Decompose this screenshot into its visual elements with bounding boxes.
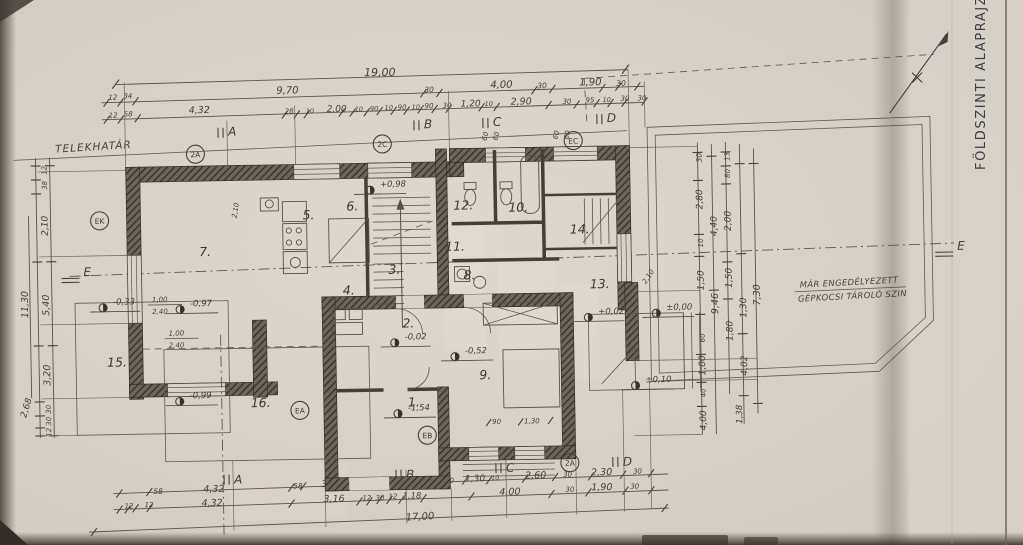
- level-value: -0,99: [190, 391, 212, 401]
- dim-label: 10: [485, 100, 493, 108]
- dim-label: 30: [45, 416, 53, 426]
- dim-label: 30: [694, 153, 703, 163]
- dim-label: 1,38: [735, 404, 745, 424]
- room-number-5: 5.: [302, 207, 314, 222]
- dim-label: 10: [385, 104, 393, 112]
- dim-label: 30: [637, 94, 647, 102]
- dim-label: 30: [630, 482, 640, 490]
- axis-label-right-e: E: [957, 239, 965, 253]
- paper-fold-shadow: [872, 0, 910, 545]
- dim-label: 2,00: [327, 105, 347, 115]
- dim-label: 1,00: [698, 355, 708, 375]
- room-number-10: 10.: [508, 199, 528, 214]
- dim-label: 58: [153, 487, 163, 496]
- dim-label: 1,50: [697, 270, 707, 290]
- dim-label: 2,80: [695, 189, 705, 209]
- dim-label: 30: [45, 404, 53, 414]
- dim-label: 38: [41, 180, 49, 190]
- dim-label: 19,00: [364, 66, 396, 80]
- dim-label: 13: [723, 152, 731, 161]
- cut-off-text-smudge-2: [744, 537, 778, 545]
- level-value: -0,02: [405, 332, 427, 342]
- drawing-title-vertical: FÖLDSZINTI ALAPRAJZ: [972, 0, 989, 170]
- dim-label: 4,00: [490, 80, 512, 91]
- room-number-14: 14.: [570, 221, 590, 236]
- dim-label: 3,20: [42, 365, 53, 386]
- dim-label: 90: [425, 102, 435, 110]
- dim-label: 30: [375, 494, 385, 502]
- room-number-2: 2.: [402, 315, 414, 330]
- room-number-13: 13.: [590, 276, 610, 291]
- dim-label: 4,00: [699, 410, 709, 430]
- room-number-16: 16.: [251, 395, 271, 410]
- level-value: -0,97: [190, 299, 213, 309]
- window-dim: 1,00: [152, 296, 168, 304]
- axis-label-top-d: D: [607, 111, 616, 125]
- room-number-3: 3.: [388, 262, 400, 277]
- dim-label: 12: [41, 165, 49, 175]
- room-number-11: 11.: [445, 239, 465, 254]
- dim-label: 11,30: [20, 291, 31, 318]
- axis-label-bottom-d: D: [623, 455, 632, 469]
- axis-label-bottom-a: A: [233, 472, 242, 486]
- axis-label-bottom-c: C: [506, 461, 515, 475]
- dim-label: 80: [724, 168, 732, 178]
- dim-label: 12: [362, 494, 372, 502]
- level-value: ±0,10: [645, 375, 671, 385]
- dim-label: 30: [616, 79, 626, 88]
- dim-label: 4,32: [189, 105, 210, 116]
- dim-label: 2,00: [723, 211, 733, 231]
- level-value: -0,52: [465, 346, 487, 356]
- dim-label: 7,30: [752, 284, 763, 305]
- section-marker-label: EA: [295, 406, 306, 415]
- room-number-12: 12.: [453, 197, 473, 212]
- dim-label: 2,10: [40, 215, 50, 235]
- level-value: +0,02: [598, 307, 624, 317]
- dim-label: 1,90: [591, 482, 612, 493]
- dim-label: 1,90: [579, 77, 601, 88]
- axis-label-top-c: C: [493, 115, 502, 129]
- window-dim: 1,30: [524, 417, 540, 425]
- dim-label: 1,30: [465, 474, 485, 484]
- window-dim: 1,00: [168, 329, 184, 337]
- dim-label: 1,30: [739, 297, 749, 317]
- dim-label: 30: [565, 486, 575, 494]
- dim-label: 17,00: [405, 511, 434, 523]
- level-value: +0,98: [380, 180, 407, 190]
- room-number-7: 7.: [199, 244, 211, 259]
- section-marker-label: 2C: [377, 140, 387, 149]
- section-marker-label: 2A: [565, 459, 576, 468]
- dim-label: 12: [124, 502, 134, 510]
- dim-label: 90: [398, 103, 408, 111]
- room-number-15: 15.: [107, 354, 127, 369]
- dim-label: 10: [491, 474, 499, 482]
- section-marker-label: EB: [422, 431, 432, 440]
- dim-label: 10: [355, 105, 363, 113]
- section-marker-label: EC: [568, 137, 578, 146]
- window-dim: 90: [492, 418, 502, 426]
- window-dim: 2,40: [169, 341, 185, 349]
- dim-label: 58: [293, 481, 303, 490]
- dim-label: 10: [412, 103, 420, 111]
- level-value: ±0,00: [666, 303, 692, 313]
- dim-label: 4,40: [710, 216, 720, 236]
- dim-label: 95: [585, 96, 595, 104]
- room-number-9: 9.: [479, 367, 491, 382]
- axis-label-top-a: A: [227, 124, 236, 138]
- dim-label: 9,46: [710, 293, 721, 314]
- dim-label: 30: [633, 467, 643, 475]
- dim-label: 12: [388, 493, 398, 501]
- cut-off-text-smudge: [642, 535, 728, 545]
- axis-label-left-e: E: [83, 265, 91, 279]
- dim-label: 12: [109, 112, 119, 120]
- scanned-floor-plan-page: FÖLDSZINTI ALAPRAJZ TELEKHATÁR: [0, 0, 1023, 545]
- paper-bottom-edge-shadow: [0, 532, 1023, 545]
- dim-label: 90: [370, 105, 380, 113]
- dim-label: 1,80: [725, 320, 735, 340]
- room-number-8: 8.: [463, 267, 475, 282]
- dim-label: 10: [306, 107, 314, 115]
- dim-label: 1,18: [402, 491, 422, 501]
- dim-label: 28: [285, 107, 295, 115]
- paper-left-edge-shadow: [0, 0, 16, 545]
- axis-label-top-b: B: [424, 117, 432, 131]
- dim-label: 2,30: [591, 467, 612, 478]
- room-number-4: 4.: [343, 282, 355, 297]
- dim-label: 9,70: [276, 85, 298, 96]
- dim-label: 30: [537, 81, 547, 90]
- dim-label: 12: [108, 94, 118, 102]
- dim-label: 1,20: [461, 99, 481, 109]
- section-marker-label: 2A: [190, 150, 201, 159]
- partition-wall: [366, 178, 368, 296]
- dim-label: 10: [602, 96, 610, 104]
- level-value: -0,33: [113, 297, 135, 307]
- room-number-6: 6.: [346, 198, 358, 213]
- dim-label: 4,32: [201, 498, 222, 509]
- dim-label: 30: [443, 102, 453, 110]
- dim-label: 2,90: [510, 96, 531, 107]
- level-value: -1,54: [408, 403, 430, 413]
- window-dim: 2,40: [152, 308, 168, 316]
- dim-label: 30: [424, 85, 434, 94]
- dim-label: 12: [144, 501, 154, 509]
- section-marker-label: EK: [95, 217, 106, 226]
- dim-label: 4,00: [499, 487, 520, 498]
- dim-label: 3,16: [323, 494, 344, 505]
- dim-label: 4,32: [203, 484, 224, 495]
- dim-label: 30: [562, 98, 572, 106]
- dim-label: 40: [700, 388, 708, 398]
- dim-label: 5,40: [41, 295, 52, 316]
- dim-label: 10: [697, 238, 705, 248]
- dim-label: 1,50: [724, 267, 734, 287]
